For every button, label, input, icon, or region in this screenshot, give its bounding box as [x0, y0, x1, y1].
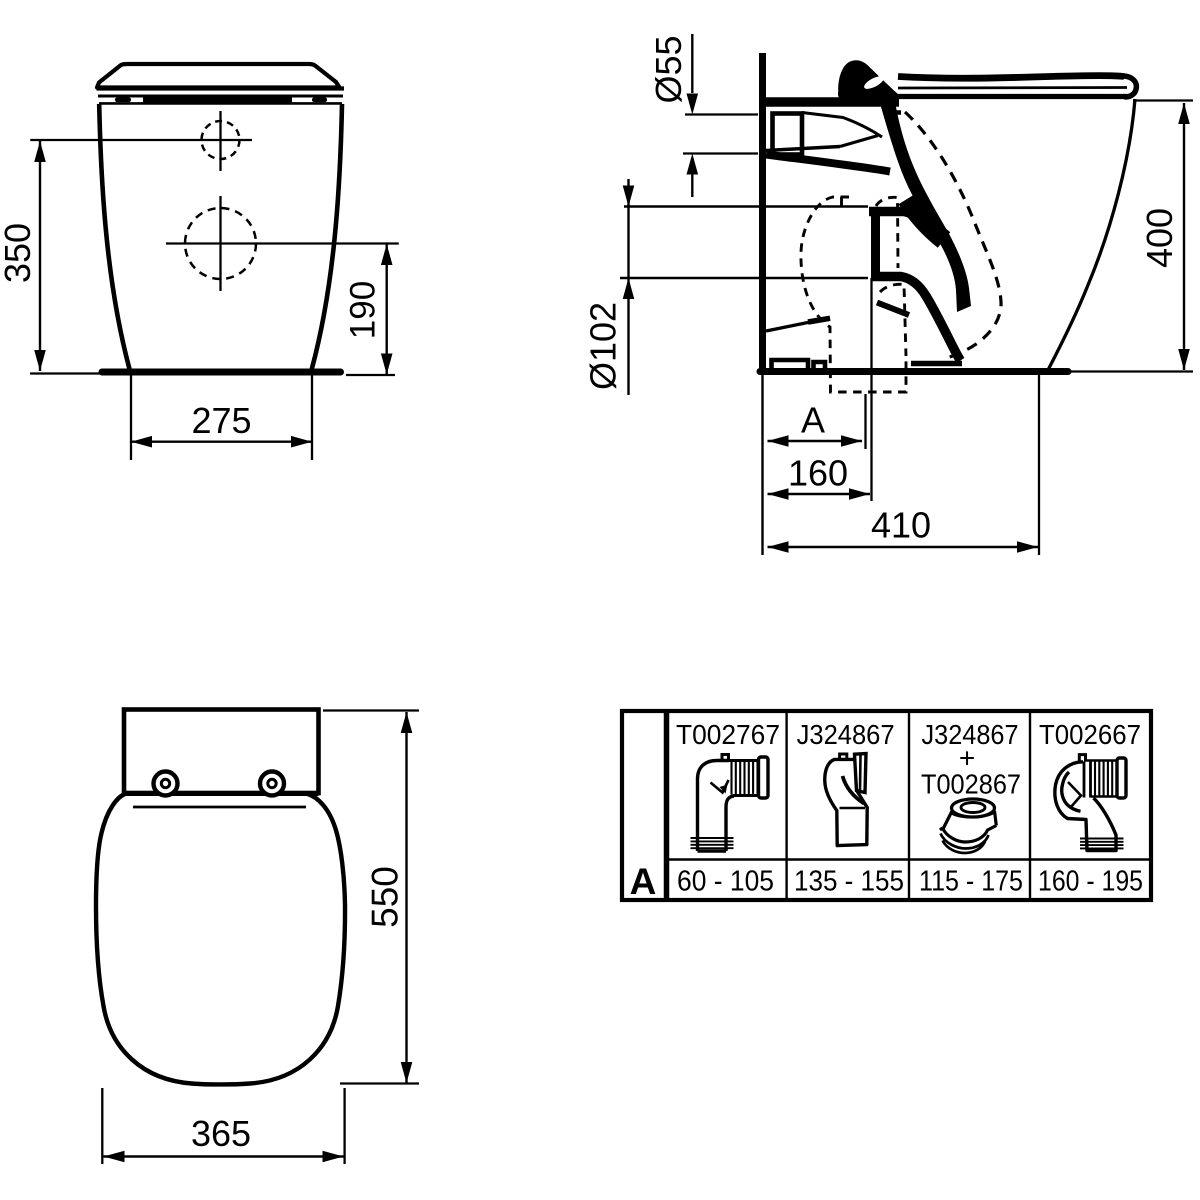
svg-text:400: 400: [1139, 208, 1180, 268]
svg-text:J324867: J324867: [797, 719, 895, 750]
svg-text:60 - 105: 60 - 105: [677, 866, 774, 898]
svg-text:275: 275: [191, 400, 251, 441]
svg-text:410: 410: [871, 505, 931, 546]
svg-text:135 - 155: 135 - 155: [794, 866, 904, 898]
svg-text:160 - 195: 160 - 195: [1038, 866, 1143, 898]
svg-text:160: 160: [788, 453, 848, 494]
svg-text:A: A: [801, 400, 825, 441]
svg-text:115 - 175: 115 - 175: [919, 866, 1023, 898]
svg-text:Ø102: Ø102: [583, 302, 624, 390]
svg-text:T002667: T002667: [1039, 719, 1141, 750]
svg-text:T002767: T002767: [676, 719, 780, 750]
svg-text:550: 550: [365, 866, 406, 928]
svg-text:365: 365: [191, 1113, 251, 1154]
svg-text:350: 350: [0, 223, 38, 283]
svg-text:Ø55: Ø55: [648, 35, 689, 103]
svg-text:190: 190: [344, 281, 383, 339]
svg-text:A: A: [630, 861, 657, 902]
svg-text:T002867: T002867: [921, 769, 1021, 800]
